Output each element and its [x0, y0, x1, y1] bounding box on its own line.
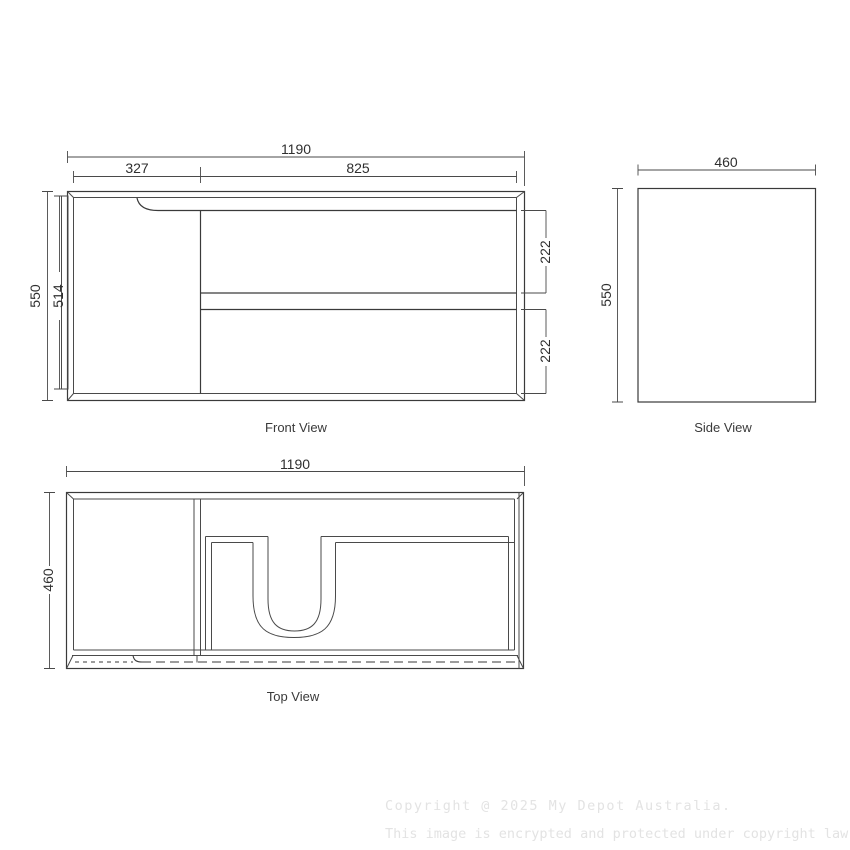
front-dim-overall-height-value: 550 [27, 284, 43, 308]
top-dim-width-value: 1190 [280, 456, 310, 472]
side-view: 460 550 Side View [598, 154, 816, 435]
front-frame-miter-corners [68, 192, 525, 401]
front-handle-groove [137, 198, 517, 211]
watermark-line-2: This image is encrypted and protected un… [385, 826, 850, 842]
top-dim-depth: 460 [40, 493, 56, 669]
front-dim-sections: 327 825 [74, 160, 517, 183]
front-dim-top-drawer-value: 222 [537, 240, 553, 264]
top-front-edge-arc [133, 656, 142, 663]
front-view-caption: Front View [265, 420, 328, 435]
vanity-drawing-svg: 1190 327 825 550 514 222 [0, 0, 850, 850]
top-drawer-box-back-lines [206, 537, 515, 543]
side-dim-height-value: 550 [598, 283, 614, 307]
side-dim-depth: 460 [638, 154, 816, 176]
top-dim-width: 1190 [67, 456, 525, 486]
front-inner-frame [74, 198, 517, 394]
front-dim-bottom-drawer-value: 222 [537, 339, 553, 363]
top-outer-outline [67, 493, 524, 669]
top-miter-corners [67, 493, 524, 669]
side-dim-depth-value: 460 [714, 154, 738, 170]
top-drawer-box [206, 537, 515, 651]
top-view-caption: Top View [267, 689, 320, 704]
front-dim-door-width-value: 327 [125, 160, 149, 176]
side-dim-height: 550 [598, 189, 623, 403]
front-outer-frame [68, 192, 525, 401]
top-u-cutout-inner [268, 537, 321, 632]
top-door-divider [194, 499, 201, 663]
front-dim-overall-width-value: 1190 [281, 141, 311, 157]
side-outline [638, 189, 816, 403]
watermark-line-1: Copyright @ 2025 My Depot Australia. [385, 798, 732, 814]
front-dim-door-height: 514 [50, 196, 66, 389]
technical-drawing-page: 1190 327 825 550 514 222 [0, 0, 850, 850]
front-drawer-gap [201, 293, 517, 310]
top-dim-depth-value: 460 [40, 568, 56, 592]
side-view-caption: Side View [694, 420, 752, 435]
front-dim-drawer-width-value: 825 [346, 160, 370, 176]
front-view: 1190 327 825 550 514 222 [27, 141, 553, 435]
watermark: Copyright @ 2025 My Depot Australia. Thi… [385, 798, 850, 842]
front-dim-door-height-value: 514 [50, 284, 66, 308]
top-u-cutout-outer [253, 543, 336, 638]
top-drawer-box-walls [206, 537, 509, 651]
top-carcass-lines [72, 493, 519, 669]
top-view: 1190 460 Top View [40, 456, 525, 704]
front-dim-drawer-heights: 222 222 [521, 211, 553, 394]
